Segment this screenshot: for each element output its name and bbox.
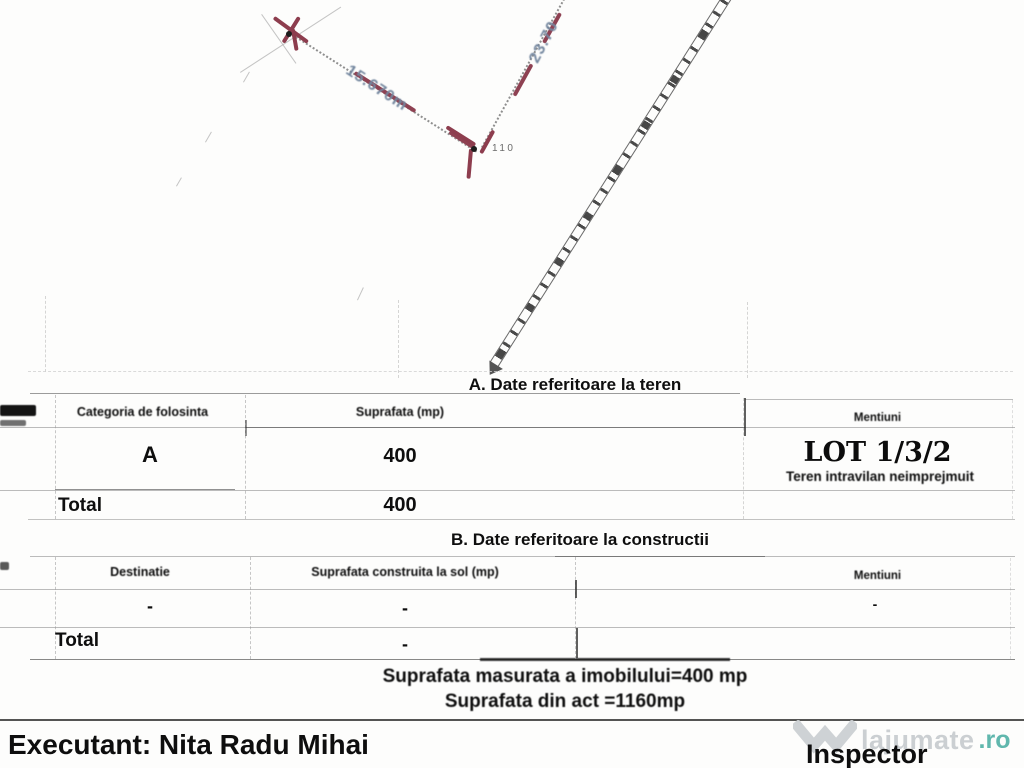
column-rule [1010,558,1011,659]
total-label: Total [55,630,99,652]
cell-suprafata-construita: - [345,598,465,619]
section-b-title: B. Date referitoare la constructii [385,530,775,550]
point-number-label: 110 [492,143,515,154]
dimension-label: 15.670m [342,62,411,115]
survey-marker [467,149,473,179]
stray-mark [176,177,182,186]
table-rule [0,627,1015,628]
table-rule [28,519,1015,520]
column-rule [1012,400,1013,519]
col-header-suprafata-construita: Suprafata construita la sol (mp) [255,565,555,579]
table-rule [0,589,1015,590]
column-tick [245,420,247,436]
total-label: Total [58,495,102,517]
table-rule [55,489,235,490]
cut-off-header-smudge [0,405,36,416]
faint-sight-line [240,7,341,73]
cell-lot-number: LOT 1/3/2 [765,437,990,468]
column-tick [576,628,578,658]
table-rule-dark [480,658,730,661]
cell-categoria: A [90,442,210,468]
fold-mark [747,302,748,378]
inspector-label: Inspector [806,739,928,768]
cell-mentiuni: - [815,596,935,612]
section-a-title: A. Date referitoare la teren [380,375,770,395]
boundary-hatch [513,63,534,96]
scanned-cadastral-document: 110 15.670m 23.70 A. Date referitoare la… [0,0,1024,768]
faint-rule [28,371,1013,372]
total-suprafata: 400 [340,494,460,517]
col-header-mentiuni: Mentiuni [780,570,975,582]
cell-suprafata: 400 [340,445,460,468]
table-rule [0,490,1015,491]
column-rule [245,395,246,519]
col-header-suprafata: Suprafata (mp) [300,405,500,419]
watermark-tld: .ro [979,726,1011,755]
cut-off-header-smudge [0,562,9,570]
fold-mark [45,296,46,372]
table-rule [30,556,1015,557]
table-rule [745,399,1013,400]
column-tick [744,398,746,436]
survey-point [286,31,292,37]
table-rule [245,427,745,428]
cell-destinatie: - [90,596,210,617]
survey-point [471,146,477,152]
stray-mark [357,287,364,300]
col-header-mentiuni: Mentiuni [780,412,975,424]
table-rule [555,556,765,557]
total-suprafata: - [345,634,465,655]
col-header-destinatie: Destinatie [45,565,235,579]
stray-mark [243,72,250,83]
measured-area-line: Suprafata masurata a imobilului=400 mp [280,666,850,688]
fold-mark [398,300,399,378]
dimension-label: 23.70 [526,18,563,66]
table-rule [30,393,740,394]
cut-off-header-smudge [0,420,26,426]
column-tick [575,580,577,598]
cell-lot-note: Teren intravilan neimprejmuit [755,469,1005,484]
column-rule [250,557,251,659]
executant-label: Executant: Nita Radu Mihai [8,729,369,761]
deed-area-line: Suprafata din act =1160mp [280,691,850,713]
col-header-categoria: Categoria de folosinta [40,405,245,419]
stray-mark [205,132,212,143]
